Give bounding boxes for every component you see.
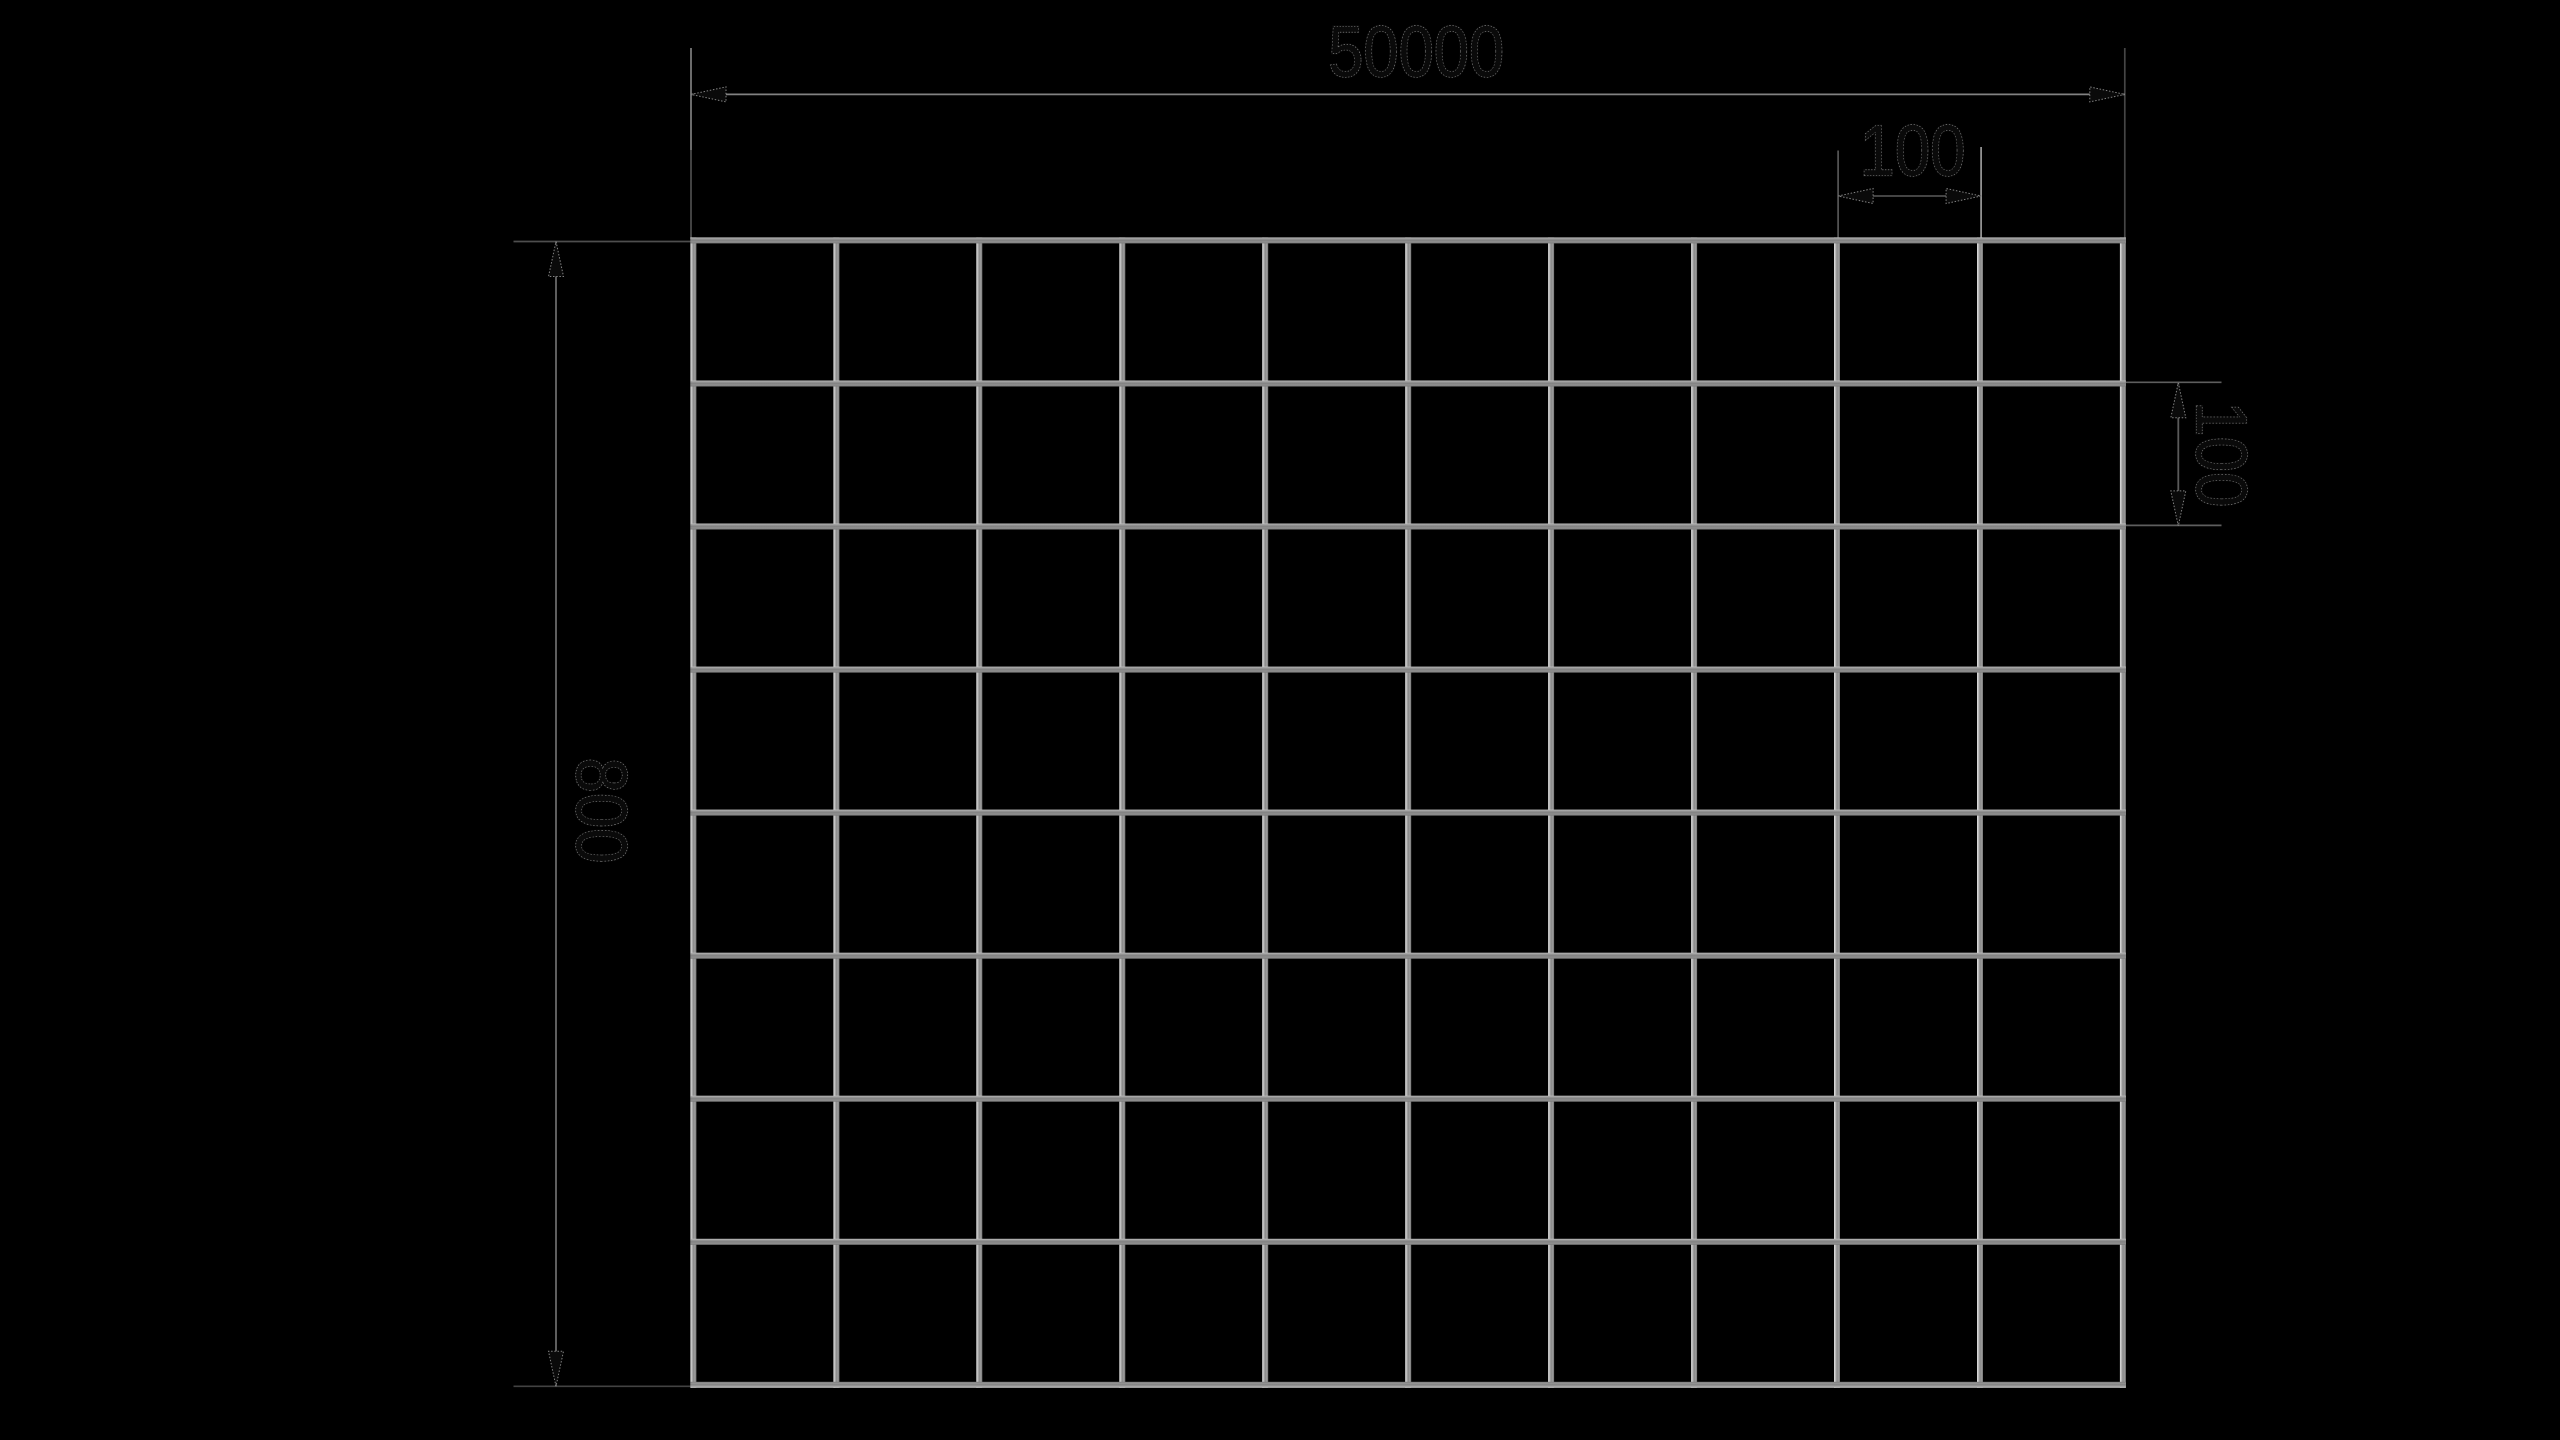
svg-text:50000: 50000 xyxy=(1328,12,1504,93)
svg-text:800: 800 xyxy=(561,758,642,864)
svg-text:100: 100 xyxy=(1860,111,1966,192)
svg-text:100: 100 xyxy=(2181,401,2262,507)
